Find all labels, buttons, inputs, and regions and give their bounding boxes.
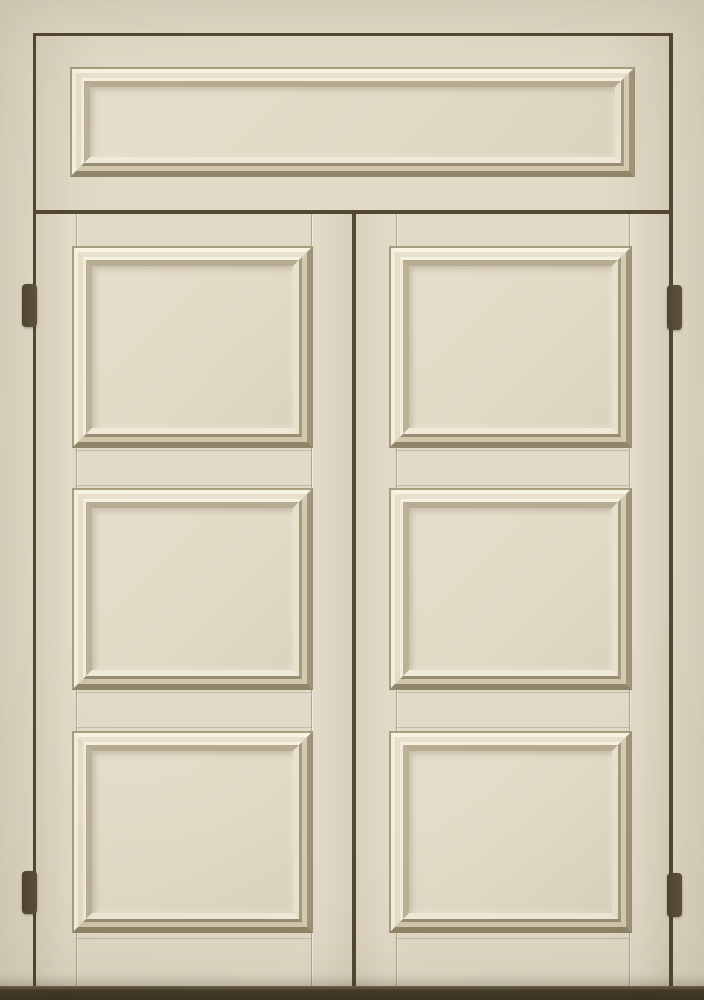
left-leaf-panel-top: [72, 246, 313, 448]
panel-plateau: [395, 494, 626, 684]
rail-seam: [397, 450, 629, 452]
panel-field: [92, 508, 293, 670]
panel-crevice: [70, 67, 635, 177]
rail-seam: [397, 938, 629, 940]
panel-plateau: [395, 252, 626, 442]
transom-raised-panel: [70, 67, 635, 177]
panel-cove: [86, 260, 299, 434]
frame-reveal-right: [669, 33, 673, 988]
panel-cove: [86, 502, 299, 676]
panel-cove: [403, 260, 618, 434]
rail-seam: [77, 450, 312, 452]
panel-plateau: [78, 494, 307, 684]
panel-outer-ridge: [74, 490, 311, 688]
hinge-bottom-left: [22, 871, 37, 914]
panel-plateau: [395, 737, 626, 927]
panel-inner-ridge: [83, 742, 302, 922]
rail-seam: [77, 485, 312, 487]
left-leaf-panel-middle: [72, 488, 313, 690]
panel-crevice: [72, 731, 313, 933]
rail-seam: [397, 727, 629, 729]
panel-crevice: [72, 488, 313, 690]
panel-field: [409, 266, 612, 428]
panel-crevice: [72, 246, 313, 448]
double-door-photo: [0, 0, 704, 1000]
rail-seam: [77, 692, 312, 694]
hinge-top-left: [22, 284, 37, 327]
floor-strip: [0, 986, 704, 1000]
panel-cove: [86, 745, 299, 919]
panel-inner-ridge: [400, 499, 621, 679]
door-leaf-right: [356, 214, 669, 986]
panel-inner-ridge: [400, 742, 621, 922]
panel-outer-ridge: [391, 248, 630, 446]
hinge-top-right: [667, 285, 682, 330]
panel-plateau: [76, 73, 629, 171]
panel-outer-ridge: [391, 733, 630, 931]
panel-field: [409, 508, 612, 670]
rail-seam: [77, 938, 312, 940]
panel-field: [92, 751, 293, 913]
right-leaf-panel-bottom: [389, 731, 632, 933]
panel-plateau: [78, 737, 307, 927]
panel-cove: [403, 745, 618, 919]
panel-crevice: [389, 488, 632, 690]
right-leaf-panel-middle: [389, 488, 632, 690]
panel-inner-ridge: [83, 499, 302, 679]
hinge-bottom-right: [667, 873, 682, 917]
panel-plateau: [78, 252, 307, 442]
panel-inner-ridge: [81, 78, 624, 166]
panel-cove: [84, 81, 621, 163]
rail-seam: [77, 727, 312, 729]
panel-crevice: [389, 731, 632, 933]
panel-outer-ridge: [72, 69, 633, 175]
panel-field: [90, 87, 615, 157]
door-leaf-left: [36, 214, 352, 986]
panel-inner-ridge: [400, 257, 621, 437]
rail-seam: [397, 485, 629, 487]
transom: [36, 36, 669, 210]
panel-outer-ridge: [74, 733, 311, 931]
rail-seam: [397, 692, 629, 694]
panel-outer-ridge: [391, 490, 630, 688]
floor-shadow: [0, 974, 704, 986]
right-leaf-panel-top: [389, 246, 632, 448]
panel-inner-ridge: [83, 257, 302, 437]
panel-field: [92, 266, 293, 428]
panel-field: [409, 751, 612, 913]
panel-crevice: [389, 246, 632, 448]
panel-cove: [403, 502, 618, 676]
left-leaf-panel-bottom: [72, 731, 313, 933]
panel-outer-ridge: [74, 248, 311, 446]
